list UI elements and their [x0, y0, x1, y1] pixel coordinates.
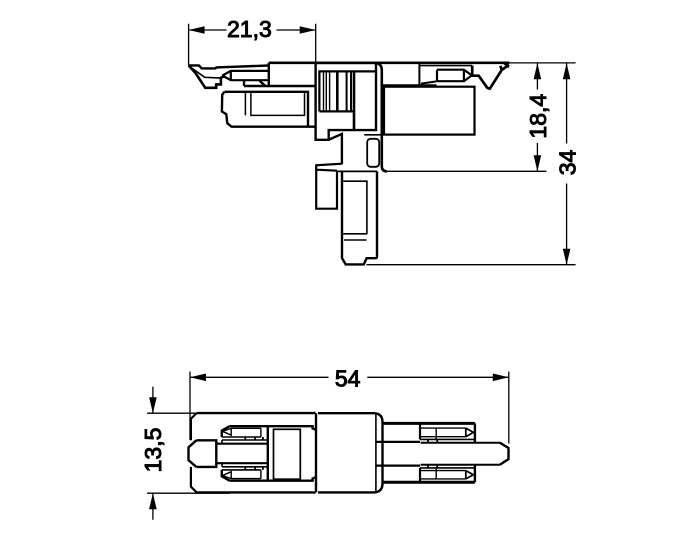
svg-text:18,4: 18,4	[525, 94, 551, 139]
svg-text:21,3: 21,3	[227, 16, 272, 42]
svg-text:34: 34	[555, 150, 581, 176]
svg-text:54: 54	[335, 365, 361, 391]
svg-text:13,5: 13,5	[140, 428, 166, 473]
